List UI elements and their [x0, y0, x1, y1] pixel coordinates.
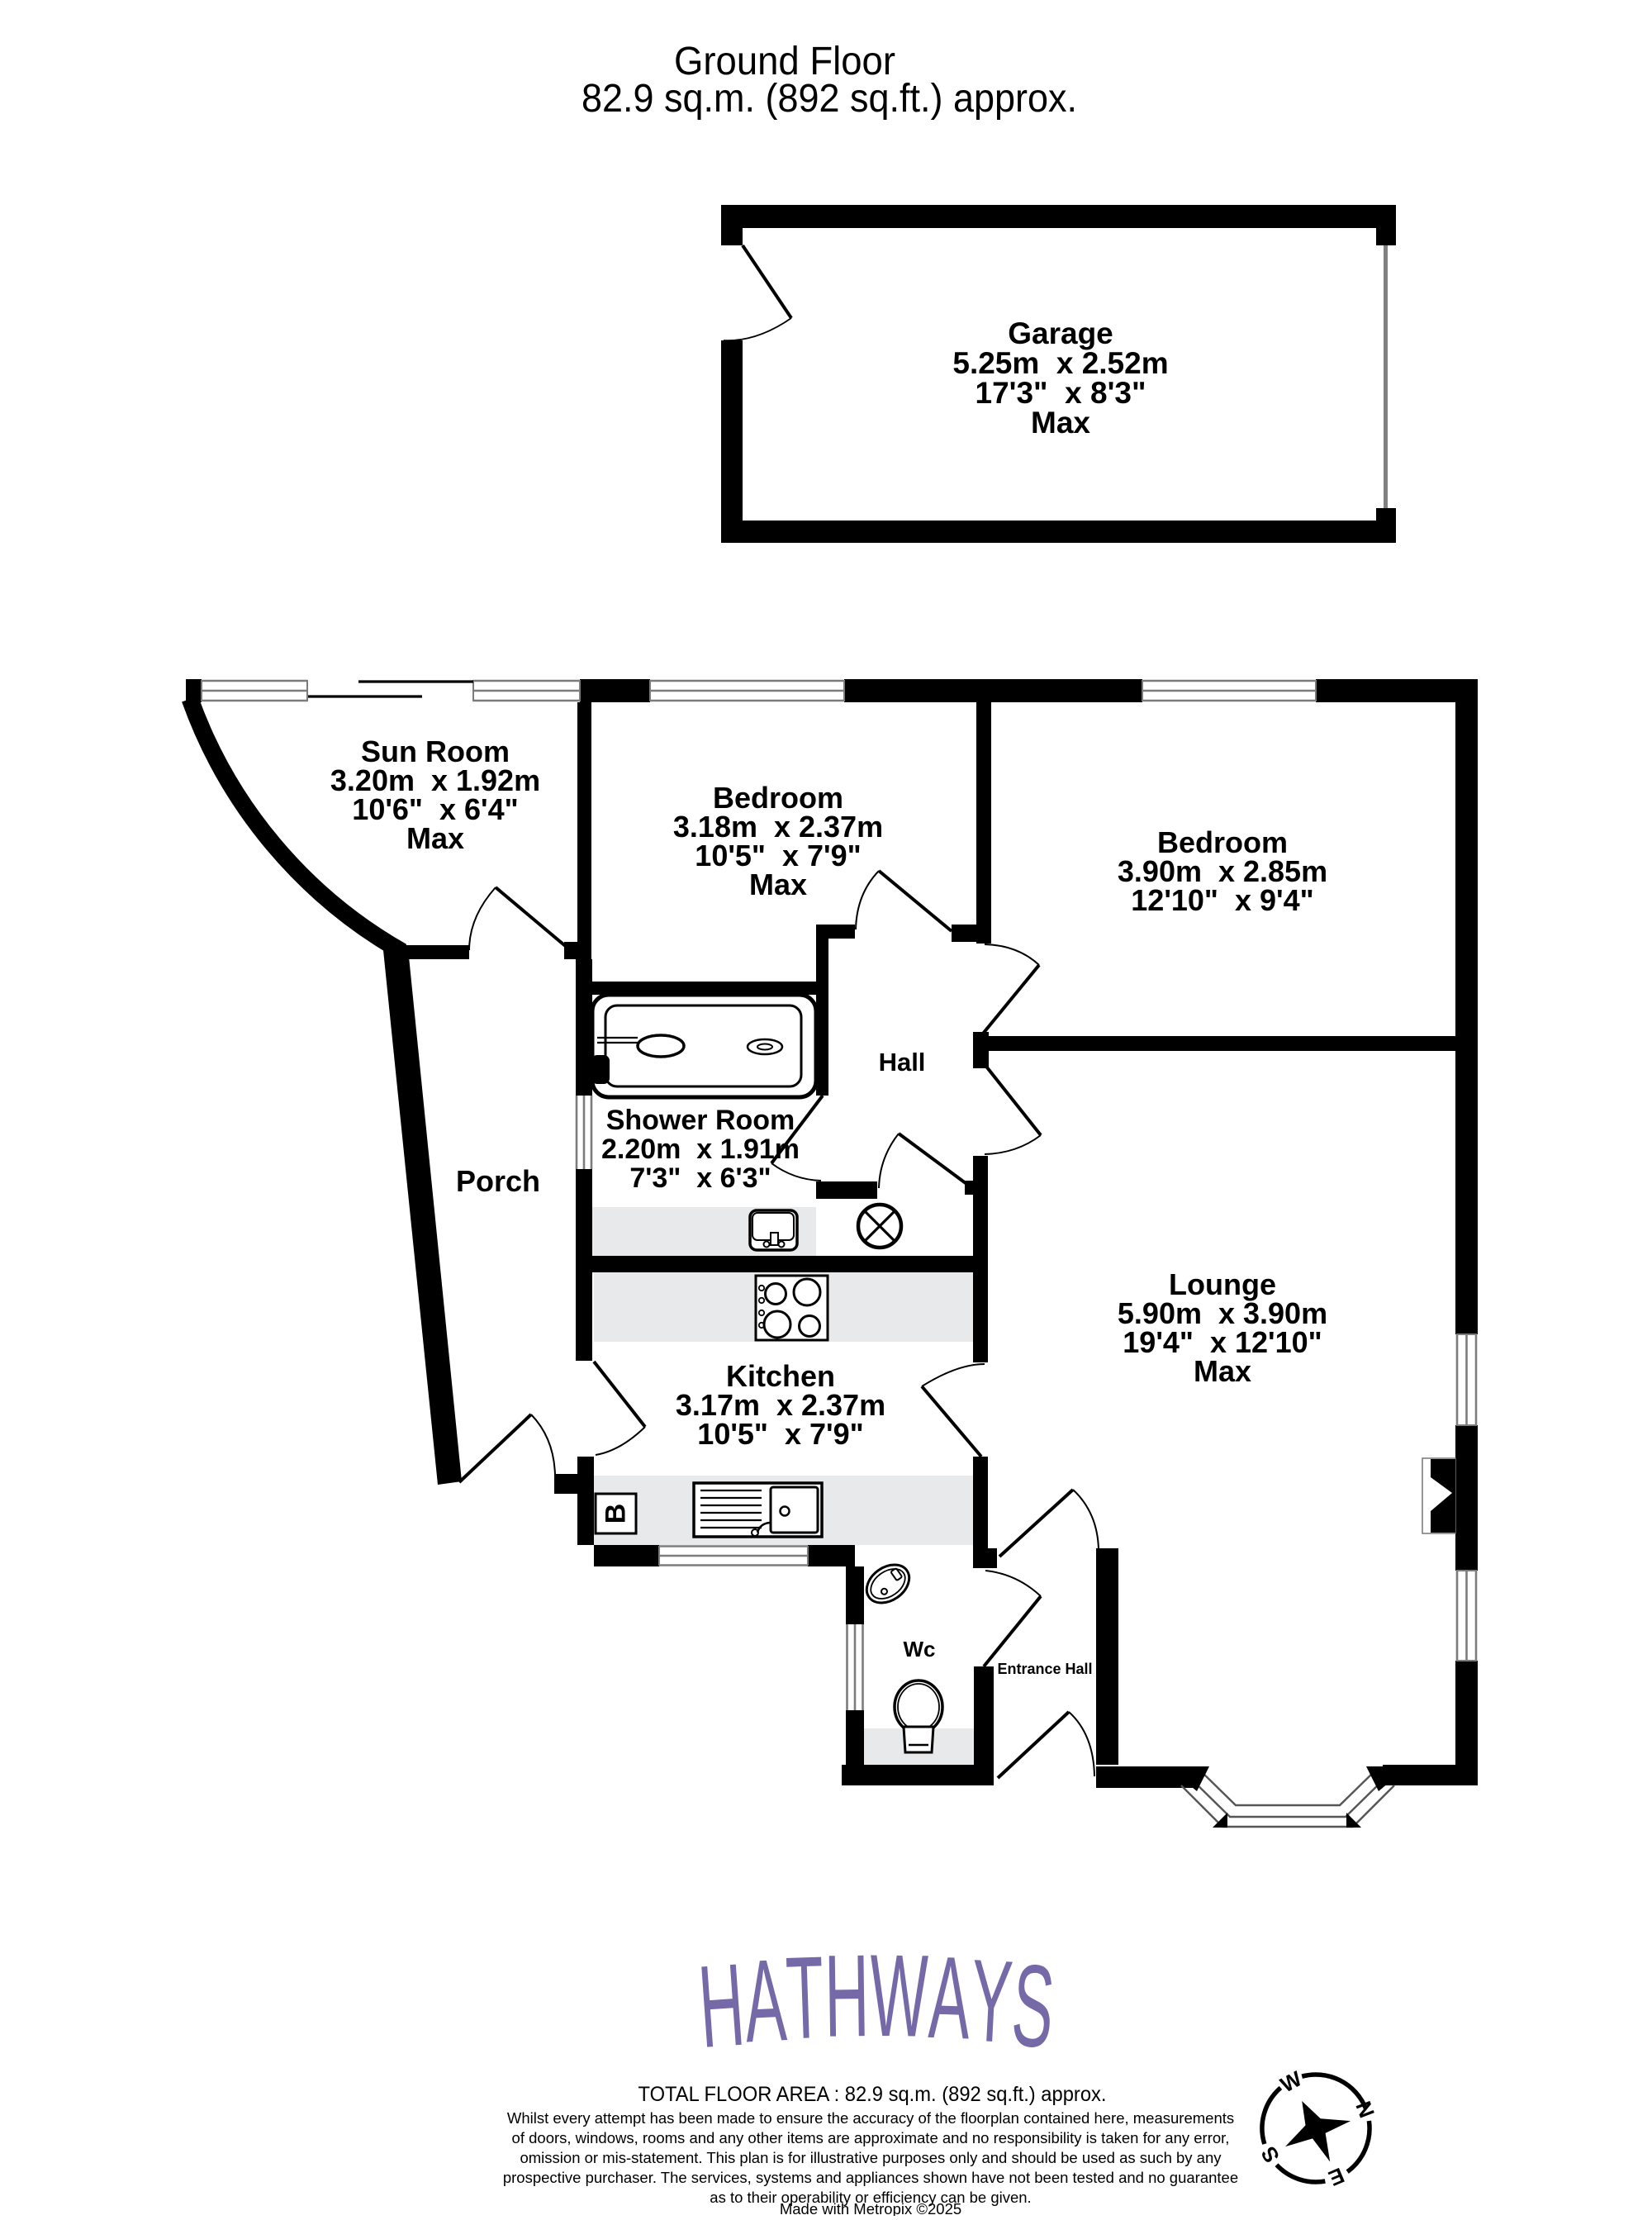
svg-text:Max: Max	[1194, 1354, 1251, 1388]
svg-text:Wc: Wc	[904, 1637, 936, 1661]
svg-text:Porch: Porch	[456, 1164, 540, 1198]
svg-text:T: T	[784, 1932, 826, 2063]
svg-text:Garage: Garage	[1008, 316, 1113, 350]
svg-text:17'3" x 8'3": 17'3" x 8'3"	[976, 376, 1146, 410]
svg-text:N: N	[1351, 2098, 1379, 2121]
svg-text:H: H	[695, 1939, 748, 2072]
svg-text:prospective purchaser. The ser: prospective purchaser. The services, sys…	[503, 2169, 1238, 2186]
svg-text:Made with Metropix ©2025: Made with Metropix ©2025	[780, 2200, 961, 2216]
svg-text:Max: Max	[406, 821, 464, 855]
svg-text:Whilst every attempt has been: Whilst every attempt has been made to en…	[507, 2109, 1234, 2127]
svg-text:Max: Max	[749, 868, 807, 901]
svg-text:A: A	[927, 1932, 972, 2063]
svg-text:W: W	[870, 1930, 929, 2061]
svg-text:5.25m x 2.52m: 5.25m x 2.52m	[952, 346, 1168, 380]
svg-text:A: A	[741, 1935, 789, 2067]
svg-text:S: S	[1256, 2142, 1284, 2167]
svg-text:10'5" x 7'9": 10'5" x 7'9"	[697, 1417, 863, 1451]
svg-text:TOTAL FLOOR AREA : 82.9 sq.m.: TOTAL FLOOR AREA : 82.9 sq.m. (892 sq.ft…	[638, 2083, 1107, 2106]
svg-text:Shower Room: Shower Room	[606, 1105, 795, 1136]
svg-text:2.20m x 1.91m: 2.20m x 1.91m	[601, 1134, 800, 1165]
svg-text:Y: Y	[967, 1935, 1015, 2067]
svg-text:B: B	[601, 1504, 632, 1524]
svg-text:Hall: Hall	[879, 1048, 926, 1077]
svg-text:W: W	[1276, 2066, 1306, 2097]
svg-text:S: S	[1008, 1939, 1058, 2072]
svg-text:H: H	[824, 1930, 870, 2061]
svg-text:of doors, windows, rooms and a: of doors, windows, rooms and any other i…	[512, 2129, 1230, 2146]
svg-text:Max: Max	[1031, 406, 1090, 440]
svg-text:omission or mis-statement. Thi: omission or mis-statement. This plan is …	[520, 2149, 1222, 2166]
svg-text:Entrance Hall: Entrance Hall	[997, 1661, 1092, 1677]
svg-text:E: E	[1325, 2163, 1348, 2191]
svg-text:7'3" x 6'3": 7'3" x 6'3"	[629, 1162, 771, 1194]
svg-text:12'10" x 9'4": 12'10" x 9'4"	[1131, 883, 1313, 917]
svg-text:82.9 sq.m. (892 sq.ft.) approx: 82.9 sq.m. (892 sq.ft.) approx.	[582, 77, 1077, 121]
